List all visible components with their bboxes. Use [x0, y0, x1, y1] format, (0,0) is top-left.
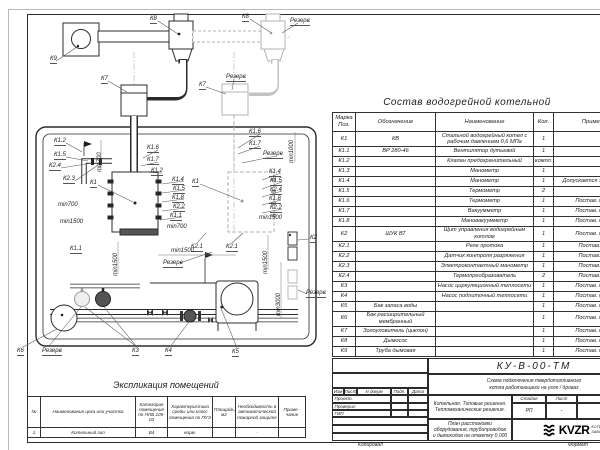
- table-cell: [356, 206, 436, 216]
- sheet-header: Лист: [546, 395, 577, 403]
- table-cell: К1.1: [333, 146, 356, 156]
- table-cell: Мановакуумметр: [436, 216, 534, 226]
- table-cell: [554, 132, 600, 147]
- table-cell: К1.6: [333, 196, 356, 206]
- table-cell: К6: [333, 311, 356, 326]
- table-cell: 1: [534, 176, 554, 186]
- table-cell: К7: [333, 326, 356, 336]
- table-cell: Термопреобразователь: [436, 271, 534, 281]
- rev-col-izm: Изм: [332, 388, 344, 395]
- table-row: К1.5Термометр2: [333, 186, 600, 196]
- table-cell: Постав. с ШУК: [554, 261, 600, 271]
- sheets-header: Листов: [577, 395, 600, 403]
- table-cell: Постав. по согла: [554, 226, 600, 241]
- equipment-label: К1.8: [269, 196, 281, 204]
- table-cell: 1: [534, 281, 554, 291]
- table-cell: Труба дымовая: [356, 346, 436, 356]
- table-cell: [356, 291, 436, 301]
- table-row: К7Золоуловитель (циклон)1Постав. по согл…: [333, 326, 600, 336]
- equipment-label: К1.6: [249, 129, 261, 137]
- table-row: К8Дымосос1Постав. по согла: [333, 336, 600, 346]
- table-cell: [356, 186, 436, 196]
- table-cell: К1.4: [333, 176, 356, 186]
- table-cell: Насос циркуляционный теплосети: [436, 281, 534, 291]
- rev-col-ndocum: N докум: [357, 388, 391, 395]
- col-fire-protection: Необходимость в автоматической пожарной …: [236, 397, 279, 428]
- kvzr-logo-text: KVZR: [559, 423, 590, 437]
- dimension-label: min700: [58, 202, 78, 208]
- table-row: К2.2Датчик контроля разряжения1Постав. с…: [333, 251, 600, 261]
- rooms-table: № Наименование цеха или участка Категори…: [27, 396, 306, 438]
- table-cell: Электроконтактный манометр: [436, 261, 534, 271]
- table-cell: Постав. по согла: [554, 301, 600, 311]
- table-cell: Постав. по согла: [554, 311, 600, 326]
- equipment-label: К3: [132, 348, 139, 356]
- equipment-label: К2.4: [49, 163, 61, 171]
- table-row: К1.7Вакуумметр1Постав. по согла: [333, 206, 600, 216]
- col-mark: Марка Поз.: [333, 113, 356, 132]
- equipment-label: К2.2: [270, 205, 282, 213]
- table-cell: Вентилятор дутьевой: [436, 146, 534, 156]
- equipment-label: К2.2: [173, 204, 185, 212]
- table-cell: [356, 281, 436, 291]
- table-cell: [356, 166, 436, 176]
- stage-value: РП: [512, 403, 546, 419]
- table-cell: К9: [333, 346, 356, 356]
- dimension-label: min1500: [60, 219, 83, 225]
- table-cell: К1.7: [333, 206, 356, 216]
- company-line1: КОТЕЛЬН: [591, 425, 600, 429]
- role-checked-sign: [391, 403, 408, 410]
- table-cell: 1: [534, 301, 554, 311]
- equipment-label: К9: [50, 56, 57, 64]
- table-cell: Золоуловитель (циклон): [356, 326, 436, 336]
- sheet-title: План расстановки оборудования, трубопров…: [428, 419, 512, 441]
- composition-table: Марка Поз. Обозначение Наименование Кол.…: [332, 112, 600, 357]
- table-cell: К1.2: [333, 156, 356, 166]
- equipment-label: К2.3: [63, 176, 75, 184]
- table-cell: К1: [333, 132, 356, 147]
- composition-table-title: Состав водогрейной котельной: [336, 97, 598, 108]
- equipment-label: К6: [17, 348, 24, 356]
- table-cell: 1: [534, 196, 554, 206]
- equipment-label: К4: [165, 348, 172, 356]
- table-cell: К1.3: [333, 166, 356, 176]
- empty-row-1: [332, 417, 428, 425]
- role-gip: ГИП: [332, 410, 391, 417]
- table-cell: 1: [534, 241, 554, 251]
- table-cell: [436, 311, 534, 326]
- table-cell: 1: [534, 226, 554, 241]
- table-cell: [356, 271, 436, 281]
- table-row: К6Бак расширительный мембранный1Постав. …: [333, 311, 600, 326]
- table-row: К2.1Реле протока1Постав. с ШУК: [333, 241, 600, 251]
- table-cell: Постав. по согла: [554, 281, 600, 291]
- table-cell: Реле протока: [436, 241, 534, 251]
- table-cell: 1: [534, 326, 554, 336]
- rev-col-podp: Подп.: [391, 388, 408, 395]
- table-cell: Вакуумметр: [436, 206, 534, 216]
- equipment-label: К1.7: [249, 141, 261, 149]
- drawing-sheet: К8К8РезервК9К7К7РезервК1.2К1.5К2.4К2.3mi…: [0, 0, 600, 450]
- role-project: Проект.: [332, 395, 391, 403]
- table-cell: -: [236, 428, 279, 438]
- col-room-note: Приме - чание: [279, 397, 306, 428]
- table-cell: 2: [534, 186, 554, 196]
- col-qty: Кол.: [534, 113, 554, 132]
- table-cell: Постав. по согла: [554, 216, 600, 226]
- col-note: Примечание: [554, 113, 600, 132]
- equipment-label: К7: [101, 76, 108, 84]
- equipment-label: К1.1: [70, 246, 82, 254]
- col-category: Категория помещения по НПБ 105-03: [136, 397, 168, 428]
- table-row: К1.4Манометр1Допускается зам. поз. К2.3: [333, 176, 600, 186]
- equipment-label: Резерв: [306, 290, 326, 298]
- table-cell: Термометр: [436, 186, 534, 196]
- table-cell: Постав. с ШУК: [554, 271, 600, 281]
- company-line2: ЗАВОД Р: [591, 430, 600, 434]
- table-cell: Котельный зал: [41, 428, 136, 438]
- table-cell: К2.2: [333, 251, 356, 261]
- equipment-label: К1.5: [54, 152, 66, 160]
- kvzr-waves-icon: [543, 424, 557, 437]
- dimension-label: min1000: [289, 140, 295, 163]
- dimension-label: min700: [97, 152, 103, 172]
- document-subtitle: Схема подключения твердотопливного котла…: [428, 374, 600, 395]
- spare-row-1: [332, 358, 428, 373]
- table-cell: 2: [534, 271, 554, 281]
- table-cell: [554, 156, 600, 166]
- role-checked-date: [408, 403, 428, 410]
- table-cell: Постав. с ШУК: [554, 251, 600, 261]
- table-cell: Датчик контроля разряжения: [436, 251, 534, 261]
- table-cell: [436, 301, 534, 311]
- role-project-sign: [391, 395, 408, 403]
- table-row: К5Бак запаса воды1Постав. по согла: [333, 301, 600, 311]
- table-cell: [436, 346, 534, 356]
- logo-cell: KVZR КОТЕЛЬН ЗАВОД Р: [512, 419, 600, 441]
- table-cell: В4: [136, 428, 168, 438]
- table-cell: К2.1: [333, 241, 356, 251]
- table-cell: Дымосос: [356, 336, 436, 346]
- table-cell: Щит управления водогрейным котлом: [436, 226, 534, 241]
- table-cell: [279, 428, 306, 438]
- equipment-label: К1.2: [54, 138, 66, 146]
- title-block: Изм Лист N докум Подп. Дата Проект. Пров…: [332, 358, 600, 441]
- rev-col-list: Лист: [344, 388, 357, 395]
- table-cell: К2: [333, 226, 356, 241]
- spare-row-2: [332, 373, 428, 388]
- equipment-label: К8: [242, 14, 249, 22]
- table-cell: 1: [534, 146, 554, 156]
- table-cell: 1: [534, 251, 554, 261]
- equipment-label: К2.4: [270, 187, 282, 195]
- equipment-label: К7: [199, 82, 206, 90]
- table-cell: [554, 166, 600, 176]
- table-cell: 1: [534, 291, 554, 301]
- table-cell: [356, 241, 436, 251]
- table-cell: Манометр: [436, 176, 534, 186]
- col-no: №: [28, 397, 41, 428]
- equipment-label: К1.7: [147, 157, 159, 165]
- equipment-label: Резерв: [226, 74, 246, 82]
- table-cell: Клапан предохранительный: [436, 156, 534, 166]
- equipment-label: К1.6: [147, 145, 159, 153]
- table-cell: [213, 428, 236, 438]
- rooms-table-title: Экспликация помещений: [27, 380, 305, 390]
- equipment-label: К1.5: [270, 178, 282, 186]
- table-cell: КВ: [356, 132, 436, 147]
- table-cell: Постав. с ШУК: [554, 241, 600, 251]
- table-cell: К1.8: [333, 216, 356, 226]
- table-row: К1КВСтальной водогрейный котел с рабочим…: [333, 132, 600, 147]
- equipment-label: Резерв: [42, 348, 62, 356]
- equipment-label: К1.1: [170, 213, 182, 221]
- table-cell: 1: [28, 428, 41, 438]
- table-cell: Постав. по согла: [554, 196, 600, 206]
- role-checked: Проверил: [332, 403, 391, 410]
- table-cell: 1: [534, 166, 554, 176]
- table-row: 1Котельный залВ4норм.-: [28, 428, 306, 438]
- table-cell: 1: [534, 336, 554, 346]
- table-cell: [436, 326, 534, 336]
- table-row: К2.4Термопреобразователь2Постав. с ШУК: [333, 271, 600, 281]
- dimension-label: min700: [167, 224, 187, 230]
- table-cell: [356, 251, 436, 261]
- role-project-date: [408, 395, 428, 403]
- table-row: К1.6Термометр1Постав. по согла: [333, 196, 600, 206]
- equipment-label: Резерв: [263, 151, 283, 159]
- table-cell: [356, 216, 436, 226]
- table-row: К2.3Электроконтактный манометр1Постав. с…: [333, 261, 600, 271]
- table-cell: Постав. по согла: [554, 326, 600, 336]
- table-cell: [554, 186, 600, 196]
- copied-label: Копировал: [358, 442, 383, 448]
- sheets-value: -: [577, 403, 600, 419]
- table-cell: Постав. по согла: [554, 336, 600, 346]
- role-gip-date: [408, 410, 428, 417]
- table-cell: Бак запаса воды: [356, 301, 436, 311]
- equipment-label: К1: [192, 179, 199, 187]
- equipment-label: Резерв: [163, 260, 183, 268]
- table-cell: 1: [534, 346, 554, 356]
- subtitle-line2: котла работающего на угле / дровах: [489, 385, 578, 391]
- table-row: К1.1ВР 280-46Вентилятор дутьевой1: [333, 146, 600, 156]
- table-cell: Постав. по согла: [554, 206, 600, 216]
- equipment-label: К2: [310, 235, 317, 243]
- table-cell: компл.: [534, 156, 554, 166]
- table-cell: [356, 156, 436, 166]
- table-cell: Допускается зам. поз. К2.3: [554, 176, 600, 186]
- table-cell: К1.5: [333, 186, 356, 196]
- empty-row-3: [332, 433, 428, 441]
- table-row: К1.3Манометр1: [333, 166, 600, 176]
- equipment-label: К8: [150, 16, 157, 24]
- rev-col-data: Дата: [408, 388, 428, 395]
- table-cell: Манометр: [436, 166, 534, 176]
- project-name: Котельная. Типовые решения. Тепломеханич…: [428, 395, 512, 419]
- table-cell: К2.4: [333, 271, 356, 281]
- table-row: К3Насос циркуляционный теплосети1Постав.…: [333, 281, 600, 291]
- table-cell: [356, 196, 436, 206]
- table-cell: [436, 336, 534, 346]
- table-cell: 1: [534, 261, 554, 271]
- company-name: КОТЕЛЬН ЗАВОД Р: [591, 425, 600, 434]
- col-name: Наименование: [436, 113, 534, 132]
- stage-header: Стадия: [512, 395, 546, 403]
- table-cell: К2.3: [333, 261, 356, 271]
- equipment-label: Резерв: [290, 18, 310, 26]
- dimension-label: min1500: [263, 251, 269, 274]
- empty-row-2: [332, 425, 428, 433]
- dimension-label: min1500: [171, 248, 194, 254]
- project-line2: Тепломеханические решения.: [435, 407, 505, 413]
- table-cell: Постав. по согла: [554, 346, 600, 356]
- table-row: К1.2Клапан предохранительныйкомпл.: [333, 156, 600, 166]
- composition-header-row: Марка Поз. Обозначение Наименование Кол.…: [333, 113, 600, 132]
- equipment-label: К5: [232, 349, 239, 357]
- table-cell: К4: [333, 291, 356, 301]
- table-cell: К3: [333, 281, 356, 291]
- equipment-label: К1: [90, 180, 97, 188]
- sheet-value: -: [546, 403, 577, 419]
- table-row: К4Насос подпиточный теплосети1Постав. по…: [333, 291, 600, 301]
- table-cell: Бак расширительный мембранный: [356, 311, 436, 326]
- table-cell: [356, 176, 436, 186]
- equipment-label: К1.4: [172, 177, 184, 185]
- equipment-label: К1.8: [172, 195, 184, 203]
- col-area: Площадь, м2: [213, 397, 236, 428]
- table-cell: К8: [333, 336, 356, 346]
- table-cell: 1: [534, 216, 554, 226]
- table-row: К9Труба дымовая1Постав. по согла: [333, 346, 600, 356]
- table-cell: [356, 261, 436, 271]
- table-cell: 1: [534, 311, 554, 326]
- table-cell: ШУК ВТ: [356, 226, 436, 241]
- role-gip-sign: [391, 410, 408, 417]
- equipment-label: К1.2: [151, 168, 163, 176]
- equipment-label: К1.5: [173, 186, 185, 194]
- table-cell: норм.: [168, 428, 213, 438]
- rooms-header-row: № Наименование цеха или участка Категори…: [28, 397, 306, 428]
- equipment-label: К2.1: [226, 244, 238, 252]
- col-room-name: Наименование цеха или участка: [41, 397, 136, 428]
- col-designation: Обозначение: [356, 113, 436, 132]
- dimension-label: min1500: [113, 253, 119, 276]
- table-cell: ВР 280-46: [356, 146, 436, 156]
- table-cell: Насос подпиточный теплосети: [436, 291, 534, 301]
- document-number: КУ-В-00-ТМ: [428, 358, 600, 374]
- col-environment: Характеристика среды или класс помещения…: [168, 397, 213, 428]
- equipment-label: К1.4: [269, 169, 281, 177]
- dimension-label: min3000: [276, 293, 282, 316]
- table-row: К1.8Мановакуумметр1Постав. по согла: [333, 216, 600, 226]
- table-cell: Стальной водогрейный котел с рабочим дав…: [436, 132, 534, 147]
- table-cell: 1: [534, 132, 554, 147]
- table-cell: 1: [534, 206, 554, 216]
- table-cell: [554, 146, 600, 156]
- table-row: К2ШУК ВТЩит управления водогрейным котло…: [333, 226, 600, 241]
- format-label: Формат: [568, 442, 588, 448]
- table-cell: Постав. по согла: [554, 291, 600, 301]
- table-cell: К5: [333, 301, 356, 311]
- dimension-label: min1500: [259, 215, 282, 221]
- table-cell: Термометр: [436, 196, 534, 206]
